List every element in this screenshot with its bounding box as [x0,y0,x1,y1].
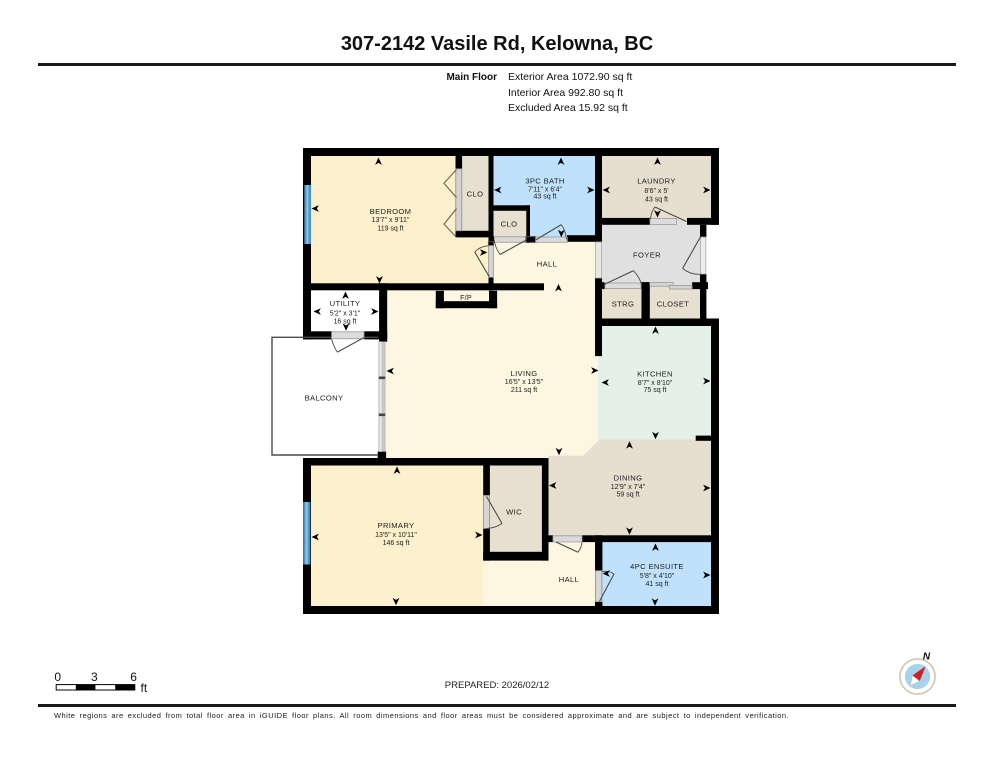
svg-text:STRG: STRG [612,300,635,309]
svg-text:0: 0 [54,670,61,684]
svg-text:41 sq ft: 41 sq ft [646,581,669,588]
svg-text:5'8" x 4'10": 5'8" x 4'10" [640,573,675,580]
svg-text:PRIMARY: PRIMARY [378,521,415,530]
svg-text:211 sq ft: 211 sq ft [511,387,537,394]
svg-text:119 sq ft: 119 sq ft [377,225,403,232]
svg-text:ft: ft [141,681,148,695]
svg-text:HALL: HALL [559,575,579,584]
svg-text:13'5" x 10'11": 13'5" x 10'11" [375,532,417,539]
svg-text:FOYER: FOYER [633,251,661,260]
svg-text:UTILITY: UTILITY [330,299,361,308]
svg-text:13'7" x 9'11": 13'7" x 9'11" [372,217,410,224]
svg-text:43 sq ft: 43 sq ft [645,197,668,204]
svg-text:8'7" x 8'10": 8'7" x 8'10" [638,380,673,387]
svg-text:LAUNDRY: LAUNDRY [637,177,676,186]
svg-text:7'11" x 6'4": 7'11" x 6'4" [528,186,562,193]
svg-text:CLO: CLO [501,220,518,229]
svg-text:BEDROOM: BEDROOM [370,207,412,216]
svg-text:12'9" x 7'4": 12'9" x 7'4" [611,484,646,491]
svg-text:5'2" x 3'1": 5'2" x 3'1" [330,310,361,317]
svg-text:3: 3 [91,670,98,684]
svg-text:BALCONY: BALCONY [305,394,344,403]
svg-text:43 sq ft: 43 sq ft [534,194,557,201]
svg-text:16 sq ft: 16 sq ft [334,318,357,325]
svg-text:LIVING: LIVING [511,369,538,378]
svg-text:DINING: DINING [614,474,643,483]
svg-text:8'6" x 5': 8'6" x 5' [644,188,668,195]
svg-text:CLO: CLO [467,190,484,199]
svg-text:N: N [923,652,931,663]
svg-text:CLOSET: CLOSET [657,300,689,309]
svg-text:HALL: HALL [537,259,557,268]
svg-text:6: 6 [130,670,137,684]
svg-text:59 sq ft: 59 sq ft [617,492,640,499]
svg-text:75 sq ft: 75 sq ft [644,387,667,394]
svg-text:WIC: WIC [506,508,522,517]
svg-text:146 sq ft: 146 sq ft [383,540,410,547]
svg-text:KITCHEN: KITCHEN [637,370,673,379]
svg-text:F/P: F/P [460,293,472,302]
svg-text:16'5" x 13'5": 16'5" x 13'5" [505,379,544,386]
svg-text:3PC BATH: 3PC BATH [525,176,564,185]
svg-text:4PC ENSUITE: 4PC ENSUITE [630,562,684,571]
